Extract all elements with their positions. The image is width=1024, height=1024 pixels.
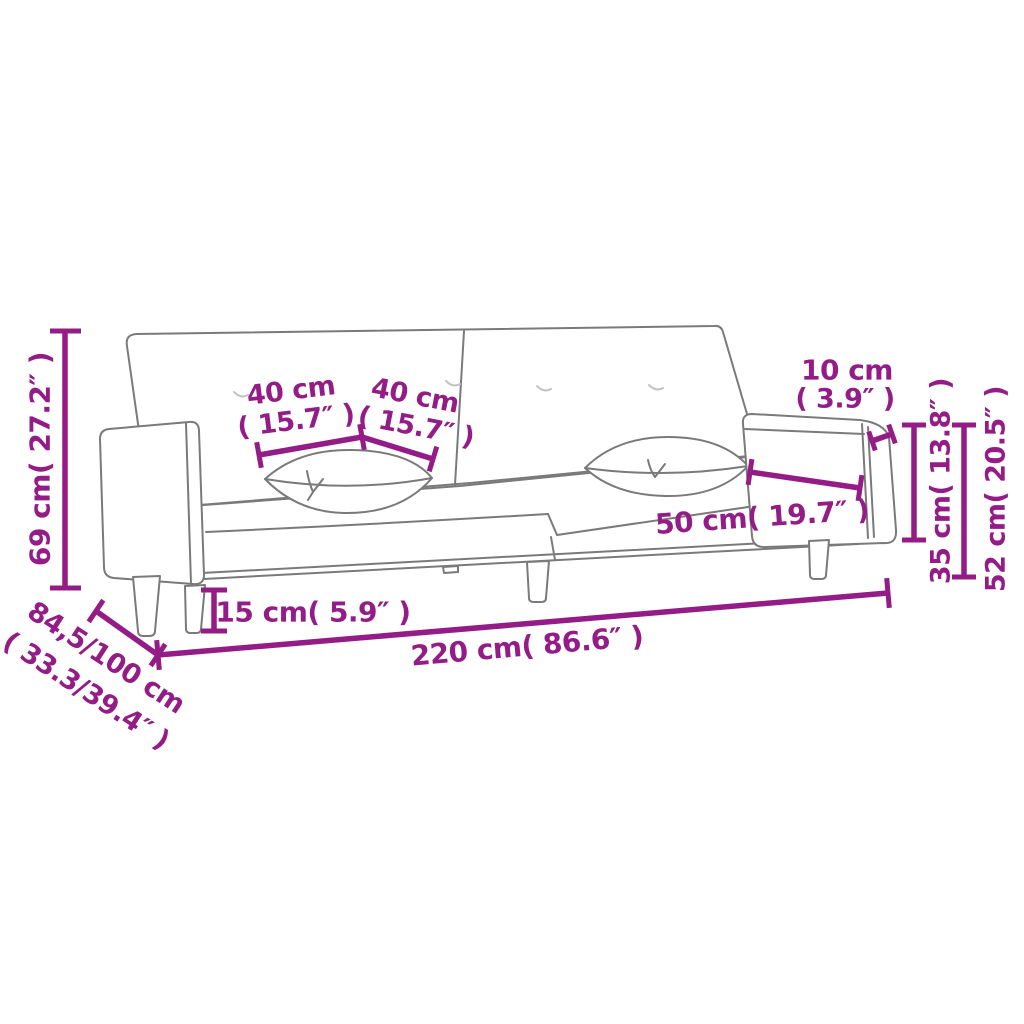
sofa-dimension-diagram: 69 cm( 27.2″ ) 84,5/100 cm ( 33.3/39.4″ … (0, 0, 1024, 1024)
dim-leg-height: 15 cm( 5.9″ ) (201, 590, 411, 631)
sofa-rear-leg-tab (443, 566, 458, 573)
dim-depth: 84,5/100 cm ( 33.3/39.4″ ) (0, 596, 190, 756)
dim-total-height-label: 69 cm( 27.2″ ) (24, 352, 57, 566)
sofa-armrest-left (100, 422, 204, 584)
dim-leg-height-label: 15 cm( 5.9″ ) (215, 596, 410, 629)
dim-total-width-cap-right (887, 578, 890, 608)
sofa-leg (133, 576, 160, 636)
dim-armrest-width-label-cm: 10 cm (801, 354, 893, 387)
sofa-leg (527, 561, 549, 602)
dim-depth-cap-top (89, 600, 104, 622)
dim-total-width-label: 220 cm( 86.6″ ) (409, 619, 644, 672)
dim-armrest-to-seat-label: 35 cm( 13.8″ ) (926, 378, 957, 584)
dim-armrest-height: 52 cm( 20.5″ ) (952, 386, 1012, 592)
dimension-diagram-canvas: 69 cm( 27.2″ ) 84,5/100 cm ( 33.3/39.4″ … (0, 0, 1024, 1024)
dim-armrest-width-label-in: ( 3.9″ ) (795, 384, 894, 415)
dim-armrest-height-label: 52 cm( 20.5″ ) (981, 386, 1012, 592)
sofa-leg (809, 540, 829, 579)
dim-total-width-cap-left (157, 640, 160, 670)
dim-armrest-to-seat: 35 cm( 13.8″ ) (902, 378, 957, 584)
dim-total-height: 69 cm( 27.2″ ) (24, 331, 82, 588)
